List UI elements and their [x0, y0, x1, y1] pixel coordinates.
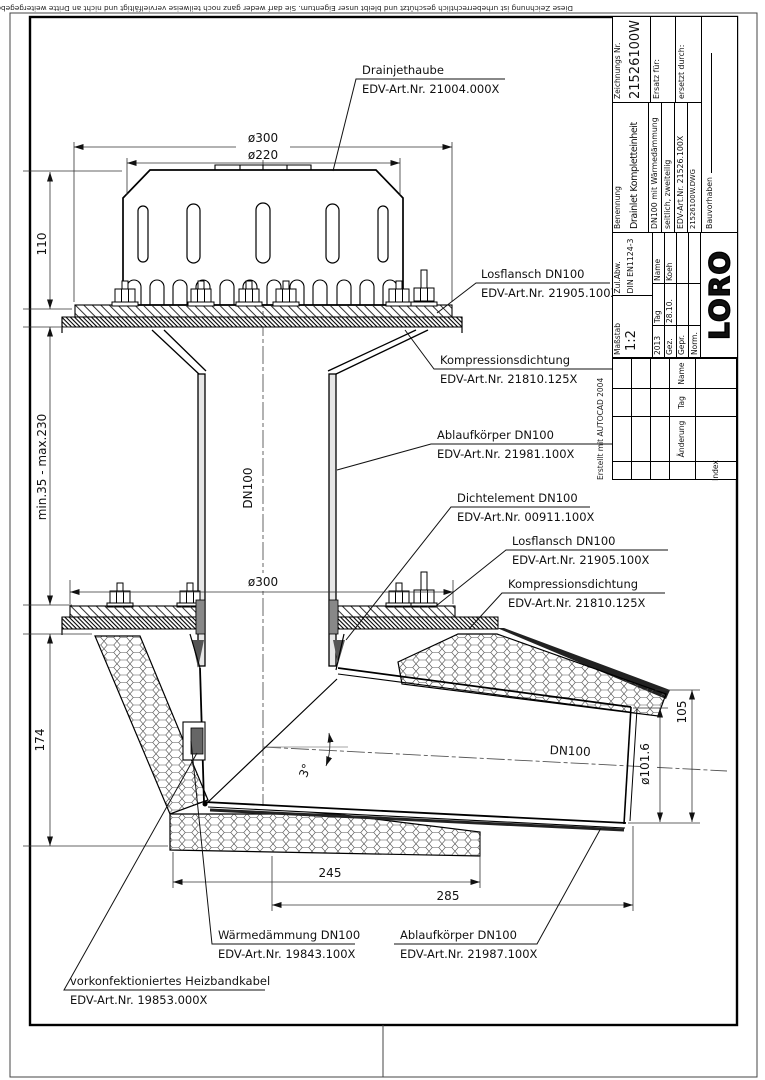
dim-dia101-6: ø101.6 [638, 743, 652, 785]
approval-table: 2013 Tag Name Gez. 28.10. Koeh Gepr. Nor… [653, 233, 701, 357]
benennung-column: Benennung Drainlet Kompletteinheit DN100… [613, 102, 701, 232]
description-line: DN100 mit Wärmedämmung [649, 103, 662, 232]
dim-dia220: ø220 [248, 148, 278, 162]
dn100-outlet-label: DN100 [549, 743, 591, 759]
svg-text:Losflansch DN100: Losflansch DN100 [512, 534, 615, 548]
copyright-notice: Diese Zeichnung ist urheberrechtlich ges… [118, 1, 573, 13]
svg-text:EDV-Art.Nr. 21905.100X: EDV-Art.Nr. 21905.100X [481, 286, 619, 300]
bauvorhaben-blank-line [704, 53, 712, 173]
approval-date [677, 283, 689, 325]
threaded-rod [411, 270, 437, 306]
zulabw-cell: Zul.Abw. DIN EN1124-3 [613, 233, 652, 295]
svg-text:Kompressionsdichtung: Kompressionsdichtung [508, 577, 638, 591]
bauvorhaben-cell: Bauvorhaben [701, 17, 737, 232]
approval-role: Gepr. [677, 325, 689, 357]
approval-year: 2013 [653, 325, 665, 357]
svg-text:Kompressionsdichtung: Kompressionsdichtung [440, 353, 570, 367]
revision-aenderung-header: Änderung [670, 416, 696, 461]
zeichnung-value: 21526100W [623, 17, 651, 102]
autocad-note: Erstellt mit AUTOCAD 2004 [596, 355, 608, 480]
zeichnung-label: Zeichnungs Nr. [613, 17, 623, 102]
dwg-filename: 21526100W.DWG [688, 103, 700, 232]
approval-name: Koeh [665, 233, 677, 283]
loro-logo-text: LORO [703, 250, 736, 340]
dim-dia300-bottom: ø300 [248, 575, 278, 589]
svg-text:EDV-Art.Nr. 21981.100X: EDV-Art.Nr. 21981.100X [437, 447, 575, 461]
svg-text:EDV-Art.Nr. 21810.125X: EDV-Art.Nr. 21810.125X [508, 596, 646, 610]
svg-text:Ablaufkörper DN100: Ablaufkörper DN100 [437, 428, 554, 442]
dn100-riser-label: DN100 [241, 467, 255, 508]
svg-text:Ablaufkörper DN100: Ablaufkörper DN100 [400, 928, 517, 942]
svg-text:EDV-Art.Nr. 21004.000X: EDV-Art.Nr. 21004.000X [362, 82, 500, 96]
description-line: seitlich, zweiteilig [662, 103, 675, 232]
bolt [386, 583, 412, 607]
revision-index-header: Index [696, 461, 737, 479]
svg-text:EDV-Art.Nr. 19853.000X: EDV-Art.Nr. 19853.000X [70, 993, 208, 1007]
angle-3deg-label: 3° [296, 762, 314, 780]
approval-date [689, 283, 701, 325]
approval-date: 28.10. [665, 283, 677, 325]
drawing-number-column: Zeichnungs Nr. 21526100W Ersatz für: ers… [613, 17, 701, 102]
svg-text:vorkonfektioniertes Heizbandka: vorkonfektioniertes Heizbandkabel [70, 974, 270, 988]
svg-text:Wärmedämmung DN100: Wärmedämmung DN100 [218, 928, 360, 942]
approval-role: Norm. [689, 325, 701, 357]
title-block-right-columns: Benennung Drainlet Kompletteinheit DN100… [613, 17, 737, 232]
title-block: Änderung Tag Name Index Maßstab 1:2 Zul.… [612, 17, 737, 480]
revision-name-header: Name [670, 358, 696, 388]
approval-tag-header: Tag [653, 283, 665, 325]
approval-name [677, 233, 689, 283]
zulabw-label: Zul.Abw. [614, 235, 623, 293]
drainjet-cap [119, 165, 407, 305]
dim-245: 245 [319, 866, 342, 880]
approval-role: Gez. [665, 325, 677, 357]
svg-text:EDV-Art.Nr. 21987.100X: EDV-Art.Nr. 21987.100X [400, 947, 538, 961]
dim-min-max: min.35 - max.230 [35, 414, 49, 521]
svg-text:EDV-Art.Nr. 00911.100X: EDV-Art.Nr. 00911.100X [457, 510, 595, 524]
revision-cell [613, 461, 632, 479]
masstab-cell: Maßstab 1:2 [613, 295, 652, 357]
dim-dia300-top: ø300 [248, 131, 278, 145]
ersetzt-label: ersetzt durch: [676, 17, 701, 102]
svg-text:Dichtelement DN100: Dichtelement DN100 [457, 491, 578, 505]
zulabw-value: DIN EN1124-3 [627, 235, 636, 293]
benennung-label: Benennung [613, 103, 623, 232]
dim-105: 105 [675, 701, 689, 724]
svg-text:EDV-Art.Nr. 21810.125X: EDV-Art.Nr. 21810.125X [440, 372, 578, 386]
heating-cable-element [183, 722, 205, 760]
benennung-value: Drainlet Kompletteinheit [623, 103, 649, 232]
approval-name-header: Name [653, 233, 665, 283]
bolt [107, 583, 133, 607]
title-block-left-column: Maßstab 1:2 Zul.Abw. DIN EN1124-3 2013 T… [613, 232, 737, 357]
bauvorhaben-label: Bauvorhaben [705, 177, 714, 229]
upper-flange [62, 305, 462, 375]
dim-285: 285 [437, 889, 460, 903]
masstab-value: 1:2 [625, 298, 640, 351]
ersatz-label: Ersatz für: [651, 17, 676, 102]
svg-text:Losflansch DN100: Losflansch DN100 [481, 267, 584, 281]
revision-tag-header: Tag [670, 388, 696, 416]
description-line: EDV-Art.Nr. 21526.100X [675, 103, 688, 232]
loro-logo: LORO [701, 233, 737, 357]
approval-name [689, 233, 701, 283]
svg-text:EDV-Art.Nr. 21905.100X: EDV-Art.Nr. 21905.100X [512, 553, 650, 567]
revision-table: Änderung Tag Name Index [613, 357, 737, 479]
riser-pipe [198, 374, 336, 666]
dim-174: 174 [33, 729, 47, 752]
svg-text:EDV-Art.Nr. 19843.100X: EDV-Art.Nr. 19843.100X [218, 947, 356, 961]
dim-110: 110 [35, 233, 49, 256]
svg-text:Drainjethaube: Drainjethaube [362, 63, 444, 77]
masstab-label: Maßstab [614, 298, 623, 355]
threaded-rod [411, 572, 437, 607]
